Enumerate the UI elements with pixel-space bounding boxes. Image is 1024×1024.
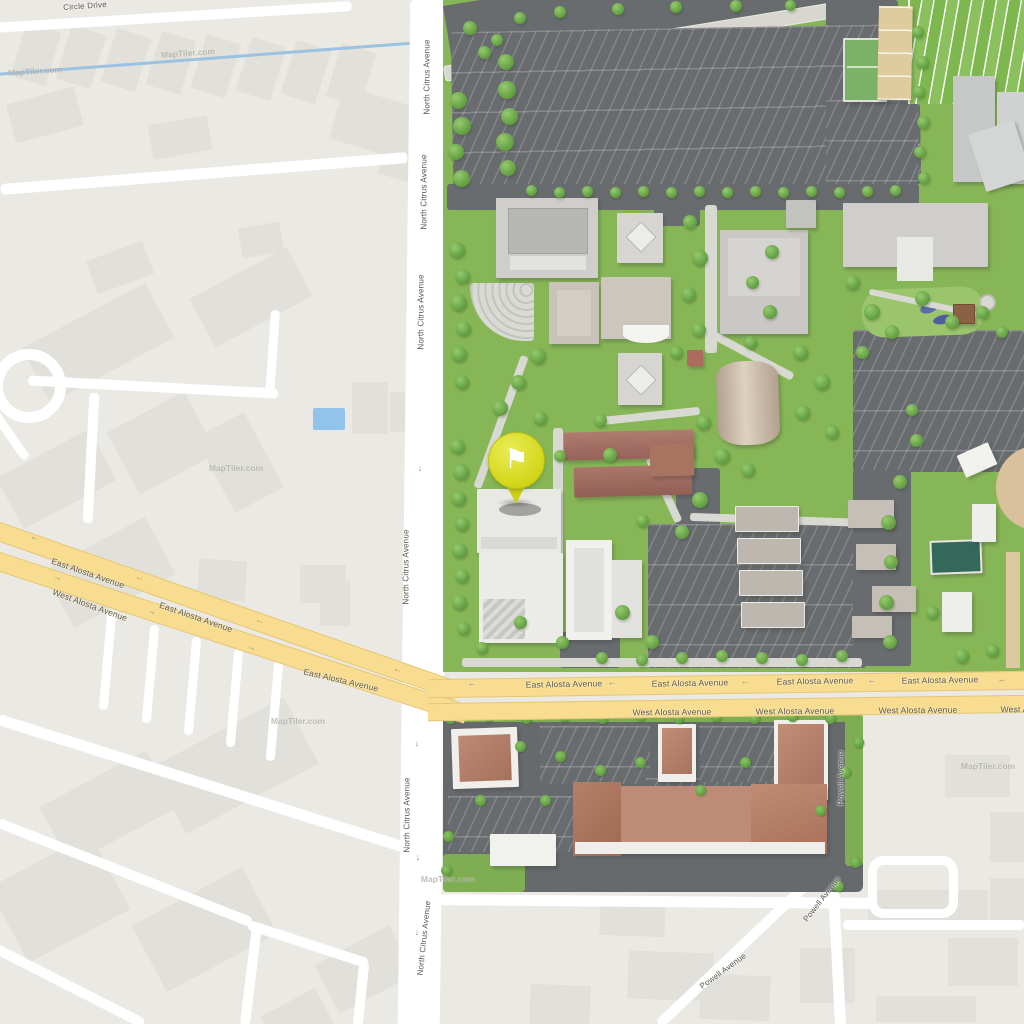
skylight-diamond: [625, 221, 656, 252]
palm-tree: [443, 831, 454, 842]
tree: [554, 6, 566, 18]
tree: [478, 46, 491, 59]
tree: [666, 187, 677, 198]
tree: [455, 569, 469, 583]
tree: [496, 133, 514, 151]
skylight-diamond: [625, 364, 656, 395]
tree: [514, 12, 526, 24]
city-block: [990, 878, 1024, 920]
facility-building: [972, 504, 996, 542]
street-road: [184, 637, 202, 735]
tree: [912, 26, 924, 38]
lecture-hall: [601, 277, 671, 339]
south-wall: [575, 842, 825, 854]
tree: [610, 187, 621, 198]
tree: [455, 517, 469, 531]
tower-hall-wing: [612, 560, 642, 638]
street-label-north-citrus-avenue: North Citrus Avenue: [420, 154, 429, 229]
tree: [683, 215, 697, 229]
kiosk: [687, 350, 703, 366]
palm-tree: [595, 765, 606, 776]
tree: [636, 654, 648, 666]
street-road: [0, 152, 408, 195]
tree: [918, 172, 930, 184]
traffic-arrow-icon: ←: [997, 674, 1006, 684]
entry-steps: [510, 256, 586, 270]
gymnasium: [720, 230, 808, 334]
city-block: [190, 247, 313, 347]
city-block: [948, 938, 1018, 986]
tree: [814, 374, 830, 390]
city-block: [147, 115, 212, 160]
roundabout: [0, 349, 66, 423]
north-wing: [786, 200, 816, 228]
tree: [765, 245, 779, 259]
tree: [986, 644, 999, 657]
palm-tree: [815, 805, 826, 816]
location-marker[interactable]: ⚑: [486, 432, 548, 510]
tree: [636, 514, 649, 527]
tree: [914, 146, 926, 158]
tree: [498, 81, 516, 99]
tree: [741, 463, 755, 477]
tree: [714, 448, 730, 464]
tower-hall: [566, 540, 612, 640]
tree: [696, 415, 711, 430]
tree: [456, 321, 471, 336]
city-block: [260, 988, 334, 1024]
street-label-west-alosta-avenue: West Alosta Avenue: [879, 705, 958, 716]
street-label-west-alosta-avenue: West Alosta Avenue: [633, 707, 712, 718]
street-road: [247, 920, 369, 968]
street-label-east-alosta-avenue: East Alosta Avenue: [526, 678, 603, 689]
street-road: [0, 942, 145, 1024]
traffic-arrow-icon: ←: [467, 678, 476, 688]
street-road: [843, 920, 1024, 930]
city-block: [320, 580, 350, 626]
tree: [890, 185, 901, 196]
traffic-arrow-icon: ←: [867, 675, 876, 685]
tree: [511, 375, 526, 390]
roof-band: [574, 548, 604, 632]
tree: [670, 1, 682, 13]
tree: [825, 425, 839, 439]
tree: [778, 187, 789, 198]
tree: [451, 491, 466, 506]
tree: [533, 411, 547, 425]
traffic-arrow-icon: ↓: [415, 927, 420, 937]
tree: [915, 291, 930, 306]
tree: [881, 515, 896, 530]
tree: [582, 186, 593, 197]
tree: [862, 186, 873, 197]
tree: [910, 434, 923, 447]
street-label-east-alosta-avenue: East Alosta Avenue: [777, 675, 854, 686]
street-road: [432, 894, 874, 909]
city-block: [876, 996, 976, 1022]
tree: [879, 595, 894, 610]
tree: [670, 346, 683, 359]
tree: [526, 185, 537, 196]
street-label-east-alosta-avenue: East Alosta Avenue: [902, 674, 979, 685]
barrel-roof-hall: [716, 360, 781, 446]
tree: [556, 636, 569, 649]
roof-section: [728, 238, 800, 296]
tree: [955, 649, 969, 663]
tree: [885, 325, 899, 339]
street-label-west-alosta-avenue: West Alosta Avenue: [1001, 704, 1024, 715]
tree: [491, 34, 503, 46]
city-block: [101, 28, 152, 92]
entry-tower: [897, 237, 933, 281]
modular-housing-row: [739, 570, 803, 596]
tree: [883, 635, 897, 649]
tree: [716, 650, 728, 662]
tree: [750, 186, 761, 197]
tree: [450, 294, 467, 311]
map-canvas[interactable]: ↓↓↓↓↓←←←←←←←←←→→→→→→→→Circle DriveNorth …: [0, 0, 1024, 1024]
street-label-east-alosta-avenue: East Alosta Avenue: [652, 677, 729, 688]
street-label-north-citrus-avenue: North Citrus Avenue: [402, 529, 411, 604]
palm-tree: [695, 785, 706, 796]
city-block: [352, 382, 388, 434]
tree: [845, 275, 860, 290]
city-block: [800, 948, 855, 1003]
tree: [554, 450, 566, 462]
tree: [554, 187, 565, 198]
warning-track: [1006, 552, 1020, 668]
street-label-north-citrus-avenue: North Citrus Avenue: [423, 39, 432, 114]
mission-pavilion: [451, 727, 519, 789]
tree: [893, 475, 907, 489]
event-center: [843, 203, 988, 267]
tree: [450, 439, 465, 454]
tree: [917, 116, 930, 129]
roof-step: [557, 290, 591, 336]
tree: [476, 642, 488, 654]
flag-icon: ⚑: [504, 446, 528, 473]
tree: [856, 346, 869, 359]
palm-tree: [635, 757, 646, 768]
tree: [916, 56, 929, 69]
tree: [448, 144, 464, 160]
tree: [500, 160, 516, 176]
tree: [913, 86, 925, 98]
performing-arts-hall: [496, 198, 598, 278]
hip-roof: [662, 728, 692, 774]
tree: [514, 616, 527, 629]
portico: [481, 537, 557, 549]
modular-housing-row: [735, 506, 799, 532]
parking-lot-court: [826, 100, 918, 186]
street-label-north-citrus-avenue: North Citrus Avenue: [417, 274, 426, 349]
city-block: [6, 87, 84, 144]
parking-lot-east: [853, 330, 1024, 472]
campus-walkway: [705, 205, 717, 353]
atrium-hall-south: [618, 353, 662, 405]
tree: [692, 323, 706, 337]
map-watermark: MapTiler.com: [209, 463, 263, 473]
tree: [463, 21, 477, 35]
curved-entry: [623, 325, 669, 343]
street-label-west-alosta-avenue: West Alosta Avenue: [756, 706, 835, 717]
tree: [692, 250, 708, 266]
tree: [681, 287, 696, 302]
traffic-arrow-icon: ↓: [415, 738, 420, 748]
tree: [676, 652, 688, 664]
tree: [450, 92, 467, 109]
tree: [834, 187, 845, 198]
swimming-pool: [313, 408, 345, 430]
street-road: [142, 625, 160, 723]
palm-tree: [555, 751, 566, 762]
traffic-arrow-icon: ↓: [416, 852, 421, 862]
city-block: [191, 34, 242, 98]
mission-long-hall: [573, 786, 827, 854]
map-watermark: MapTiler.com: [421, 874, 475, 884]
tree: [864, 304, 880, 320]
street-label-powell-avenue: Powell Avenue: [837, 751, 846, 806]
palm-tree: [540, 795, 551, 806]
tree: [746, 276, 759, 289]
classroom-wing-c: [650, 443, 695, 476]
tennis-court: [929, 539, 982, 575]
tree: [453, 170, 470, 187]
tree: [926, 606, 939, 619]
hip-roof: [458, 734, 512, 782]
tree: [612, 3, 624, 15]
tree: [457, 622, 470, 635]
tree: [744, 336, 757, 349]
tree: [793, 345, 808, 360]
map-watermark: MapTiler.com: [961, 761, 1015, 771]
tree: [996, 326, 1008, 338]
street-road: [99, 612, 117, 710]
tree: [645, 635, 659, 649]
sand-volleyball-courts: [877, 6, 913, 101]
street-loop: [868, 856, 958, 918]
service-building: [490, 834, 556, 866]
palm-tree: [740, 757, 751, 768]
tree: [806, 186, 817, 197]
tree: [976, 306, 989, 319]
modular-housing-row: [741, 602, 805, 628]
tree: [449, 242, 465, 258]
map-watermark: MapTiler.com: [271, 716, 325, 726]
street-road: [265, 310, 280, 398]
tree: [836, 650, 848, 662]
street-label-north-citrus-avenue: North Citrus Avenue: [403, 777, 412, 852]
city-block: [990, 812, 1024, 862]
marker-balloon: ⚑: [488, 432, 545, 489]
tree: [455, 375, 469, 389]
tree: [452, 543, 467, 558]
tree: [884, 555, 898, 569]
tree: [722, 187, 733, 198]
street-label-circle-drive: Circle Drive: [63, 0, 107, 12]
tree: [455, 269, 470, 284]
city-block: [236, 37, 287, 101]
tree: [530, 348, 546, 364]
facility-building: [942, 592, 972, 632]
tree: [451, 346, 467, 362]
city-block: [529, 984, 590, 1024]
palm-tree: [853, 737, 864, 748]
city-block: [56, 25, 107, 89]
roof-panel: [508, 208, 588, 254]
traffic-arrow-icon: ←: [607, 677, 616, 687]
tree: [692, 492, 708, 508]
palm-tree: [515, 741, 526, 752]
tree: [594, 414, 607, 427]
chapel-complex: [479, 553, 563, 643]
court-line: [847, 66, 879, 68]
tree: [694, 186, 705, 197]
traffic-arrow-icon: ←: [740, 676, 749, 686]
tree: [501, 108, 518, 125]
tree: [453, 117, 471, 135]
tree: [763, 305, 777, 319]
tree: [453, 464, 469, 480]
palm-tree: [475, 795, 486, 806]
stepped-hall: [549, 282, 599, 344]
modular-housing-row: [737, 538, 801, 564]
atrium-hall: [617, 213, 663, 263]
tree: [498, 54, 514, 70]
tree: [603, 448, 617, 462]
tree: [795, 405, 810, 420]
street-road: [0, 1, 352, 33]
mission-hall-small: [658, 724, 696, 782]
tree: [638, 186, 649, 197]
traffic-arrow-icon: ↓: [418, 463, 423, 473]
tree: [785, 0, 796, 11]
tree: [906, 404, 918, 416]
tree: [492, 400, 508, 416]
palm-tree: [850, 857, 861, 868]
tree: [796, 654, 808, 666]
tree: [452, 595, 467, 610]
tree: [675, 525, 689, 539]
tree: [730, 0, 742, 12]
tree: [596, 652, 608, 664]
tree: [945, 315, 959, 329]
tree: [756, 652, 768, 664]
tree: [615, 605, 630, 620]
